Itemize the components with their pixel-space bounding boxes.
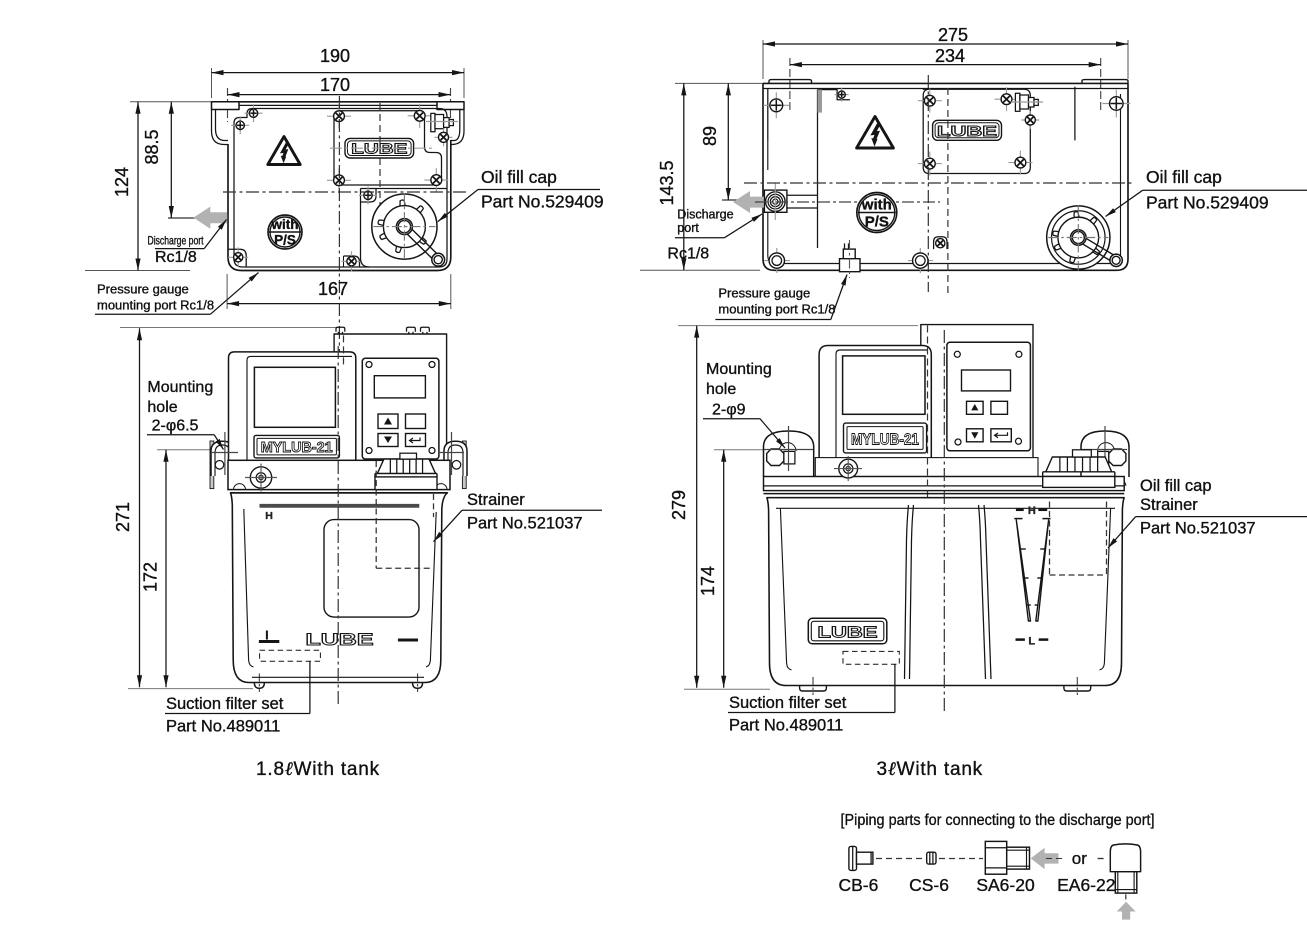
svg-text:[Piping parts for connecting t: [Piping parts for connecting to the disc… <box>841 812 1155 829</box>
svg-text:Part No.529409: Part No.529409 <box>481 192 604 212</box>
svg-text:LUBE: LUBE <box>937 124 997 140</box>
svg-text:mounting port Rc1/8: mounting port Rc1/8 <box>97 298 214 313</box>
svg-text:hole: hole <box>147 399 177 416</box>
svg-text:174: 174 <box>698 566 718 596</box>
svg-text:190: 190 <box>320 46 350 66</box>
svg-text:143.5: 143.5 <box>657 160 677 205</box>
svg-text:Mounting: Mounting <box>706 361 772 378</box>
svg-text:Rc1/8: Rc1/8 <box>667 246 709 263</box>
svg-text:Rc1/8: Rc1/8 <box>155 249 197 266</box>
svg-text:LUBE: LUBE <box>351 140 407 157</box>
svg-text:Part No.521037: Part No.521037 <box>1140 520 1256 538</box>
svg-text:234: 234 <box>935 46 965 66</box>
svg-text:EA6-22: EA6-22 <box>1057 875 1115 895</box>
svg-text:1.8ℓWith tank: 1.8ℓWith tank <box>256 759 380 780</box>
svg-text:or: or <box>1072 849 1087 868</box>
svg-text:Suction filter set: Suction filter set <box>729 694 847 712</box>
svg-text:Oil fill cap: Oil fill cap <box>1140 477 1212 495</box>
svg-text:P/S: P/S <box>865 214 889 231</box>
svg-text:Part No.489011: Part No.489011 <box>729 717 843 735</box>
svg-text:H: H <box>265 510 273 522</box>
svg-text:mounting port Rc1/8: mounting port Rc1/8 <box>718 302 835 317</box>
svg-text:L: L <box>1028 636 1035 648</box>
svg-text:Part No.529409: Part No.529409 <box>1146 193 1269 213</box>
svg-text:Oil fill cap: Oil fill cap <box>1146 167 1222 187</box>
svg-text:Strainer: Strainer <box>467 491 525 509</box>
svg-text:170: 170 <box>320 75 350 95</box>
svg-text:271: 271 <box>113 502 133 532</box>
svg-text:Part No.521037: Part No.521037 <box>467 515 583 533</box>
svg-text:2-φ9: 2-φ9 <box>712 402 746 419</box>
svg-text:Pressure gauge: Pressure gauge <box>97 282 189 297</box>
svg-text:H: H <box>1028 505 1036 517</box>
svg-text:2-φ6.5: 2-φ6.5 <box>152 418 199 435</box>
svg-text:Discharge port: Discharge port <box>148 234 204 248</box>
svg-text:172: 172 <box>141 562 161 592</box>
svg-text:Discharge: Discharge <box>677 208 733 222</box>
svg-text:P/S: P/S <box>274 233 296 248</box>
svg-text:MYLUB-21: MYLUB-21 <box>261 439 333 456</box>
svg-text:with: with <box>861 197 892 214</box>
svg-text:SA6-20: SA6-20 <box>976 875 1035 895</box>
svg-text:275: 275 <box>938 25 968 45</box>
svg-text:LUBE: LUBE <box>306 630 374 649</box>
svg-text:CS-6: CS-6 <box>909 875 949 895</box>
svg-text:88.5: 88.5 <box>142 129 162 164</box>
svg-text:Strainer: Strainer <box>1140 496 1198 514</box>
svg-text:LUBE: LUBE <box>818 624 878 641</box>
svg-text:Suction filter set: Suction filter set <box>166 695 284 713</box>
svg-text:port: port <box>677 221 699 235</box>
svg-text:167: 167 <box>318 279 348 299</box>
svg-text:Oil fill cap: Oil fill cap <box>481 167 557 187</box>
svg-text:CB-6: CB-6 <box>838 875 878 895</box>
svg-text:hole: hole <box>706 381 736 398</box>
svg-text:3ℓWith tank: 3ℓWith tank <box>877 759 984 780</box>
svg-text:MYLUB-21: MYLUB-21 <box>851 431 919 448</box>
svg-text:124: 124 <box>112 167 132 197</box>
svg-text:279: 279 <box>669 490 689 520</box>
svg-text:89: 89 <box>700 126 720 146</box>
svg-text:Part No.489011: Part No.489011 <box>166 718 280 736</box>
svg-text:Mounting: Mounting <box>147 379 213 396</box>
svg-text:with: with <box>271 217 299 232</box>
svg-text:Pressure gauge: Pressure gauge <box>718 286 810 301</box>
